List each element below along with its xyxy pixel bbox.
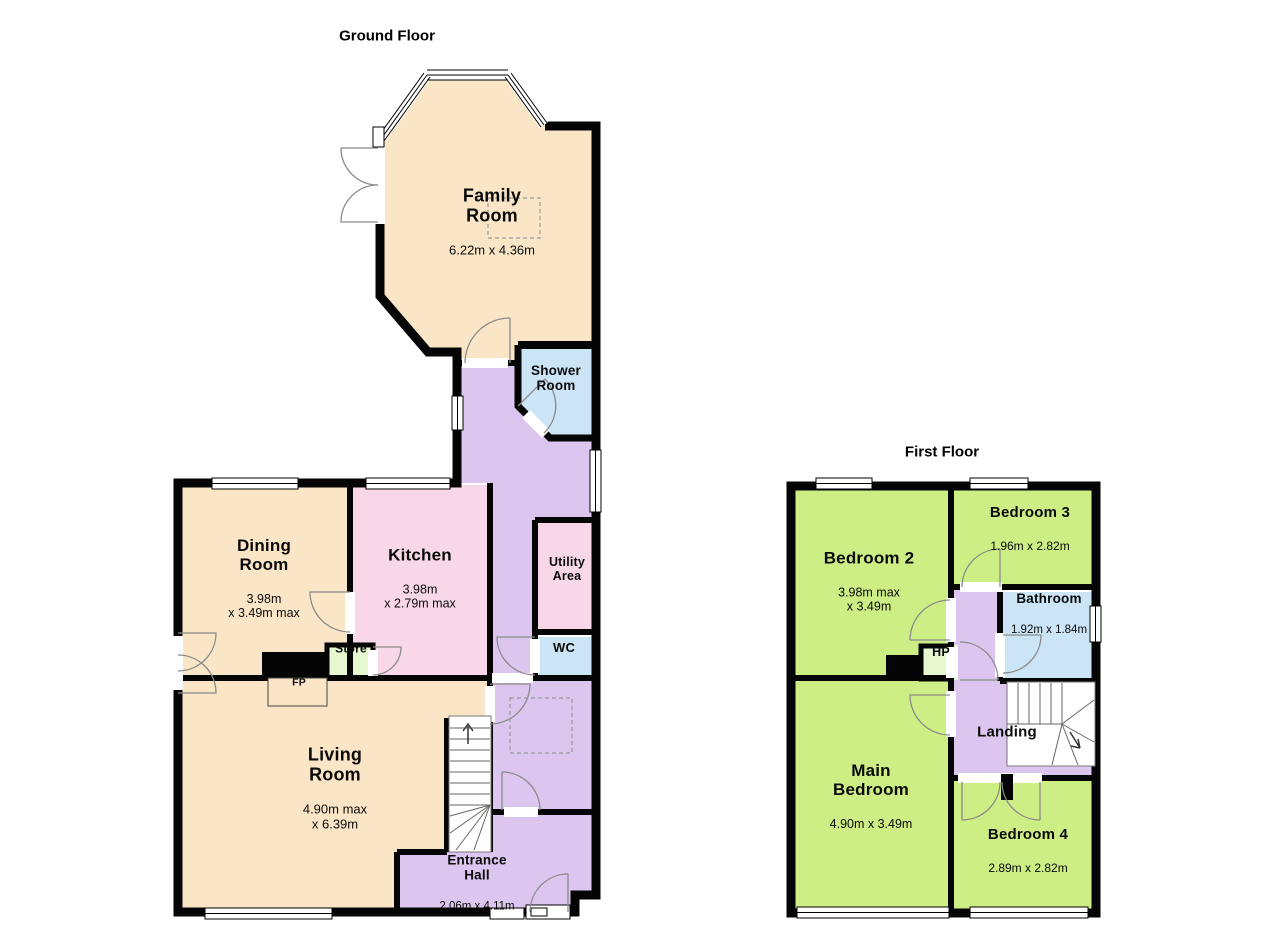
room-dims: 3.98m x 3.49m max xyxy=(228,592,300,620)
room-label-bedroom-4: Bedroom 4 2.89m x 2.82m xyxy=(988,809,1068,893)
room-dims: 4.90m x 3.49m xyxy=(830,817,913,831)
room-label-shower-room: Shower Room xyxy=(531,345,581,429)
ground-floor-plan xyxy=(172,70,601,919)
room-label-store: Store xyxy=(335,624,367,691)
room-label-family-room: Family Room 6.22m x 4.36m xyxy=(449,168,535,277)
room-dims: 6.22m x 4.36m xyxy=(449,244,535,259)
room-name: FP xyxy=(292,677,306,689)
room-label-fireplace: FP xyxy=(292,659,306,724)
ground-floor-title: Ground Floor xyxy=(339,28,435,45)
room-name: Bedroom 2 xyxy=(824,549,915,568)
room-name: Bedroom 4 xyxy=(988,827,1068,844)
room-name: Entrance Hall xyxy=(439,853,514,883)
first-floor-title: First Floor xyxy=(905,444,979,461)
room-dims: 1.96m x 2.82m xyxy=(990,540,1070,553)
room-name: Living Room xyxy=(303,744,367,784)
ground-stairs xyxy=(449,716,491,852)
room-dims: 2.89m x 2.82m xyxy=(988,862,1068,875)
room-name: Family Room xyxy=(449,186,535,226)
room-dims: 3.98m max x 3.49m xyxy=(824,585,915,613)
floorplan-canvas: Ground Floor First Floor Family Room 6.2… xyxy=(0,0,1280,930)
room-name: Dining Room xyxy=(228,536,300,574)
room-name: Kitchen xyxy=(384,546,456,565)
room-name: Shower Room xyxy=(531,363,581,393)
room-label-utility-area: Utility Area xyxy=(549,537,585,619)
floorplan-drawing xyxy=(0,0,1280,930)
room-name: Store xyxy=(335,642,367,655)
room-name: HP xyxy=(932,645,950,659)
room-label-main-bedroom: Main Bedroom 4.90m x 3.49m xyxy=(830,743,913,849)
room-label-bedroom-2: Bedroom 2 3.98m max x 3.49m xyxy=(824,531,915,632)
room-name: Bedroom 3 xyxy=(990,505,1070,522)
room-label-bedroom-3: Bedroom 3 1.96m x 2.82m xyxy=(990,487,1070,571)
room-name: Landing xyxy=(977,725,1037,742)
room-name: WC xyxy=(553,641,575,656)
room-label-landing: Landing xyxy=(977,707,1037,778)
room-dims: 3.98m x 2.79m max xyxy=(384,582,456,610)
room-name: Bathroom xyxy=(1011,591,1087,606)
room-dims: 2.06m x 4.11m xyxy=(439,901,514,914)
room-label-dining-room: Dining Room 3.98m x 3.49m max xyxy=(228,518,300,638)
room-label-entrance-hall: Entrance Hall 2.06m x 4.11m xyxy=(439,835,514,930)
room-dims: 4.90m max x 6.39m xyxy=(303,803,367,832)
room-name: Utility Area xyxy=(549,555,585,583)
room-label-wc: WC xyxy=(553,623,575,691)
room-label-living-room: Living Room 4.90m max x 6.39m xyxy=(303,726,367,849)
room-label-hp: HP xyxy=(932,627,950,695)
room-label-kitchen: Kitchen 3.98m x 2.79m max xyxy=(384,528,456,629)
chimney-breast-first xyxy=(886,655,923,678)
room-label-bathroom: Bathroom 1.92m x 1.84m xyxy=(1011,573,1087,655)
room-dims: 1.92m x 1.84m xyxy=(1011,624,1087,637)
room-name: Main Bedroom xyxy=(830,761,913,799)
